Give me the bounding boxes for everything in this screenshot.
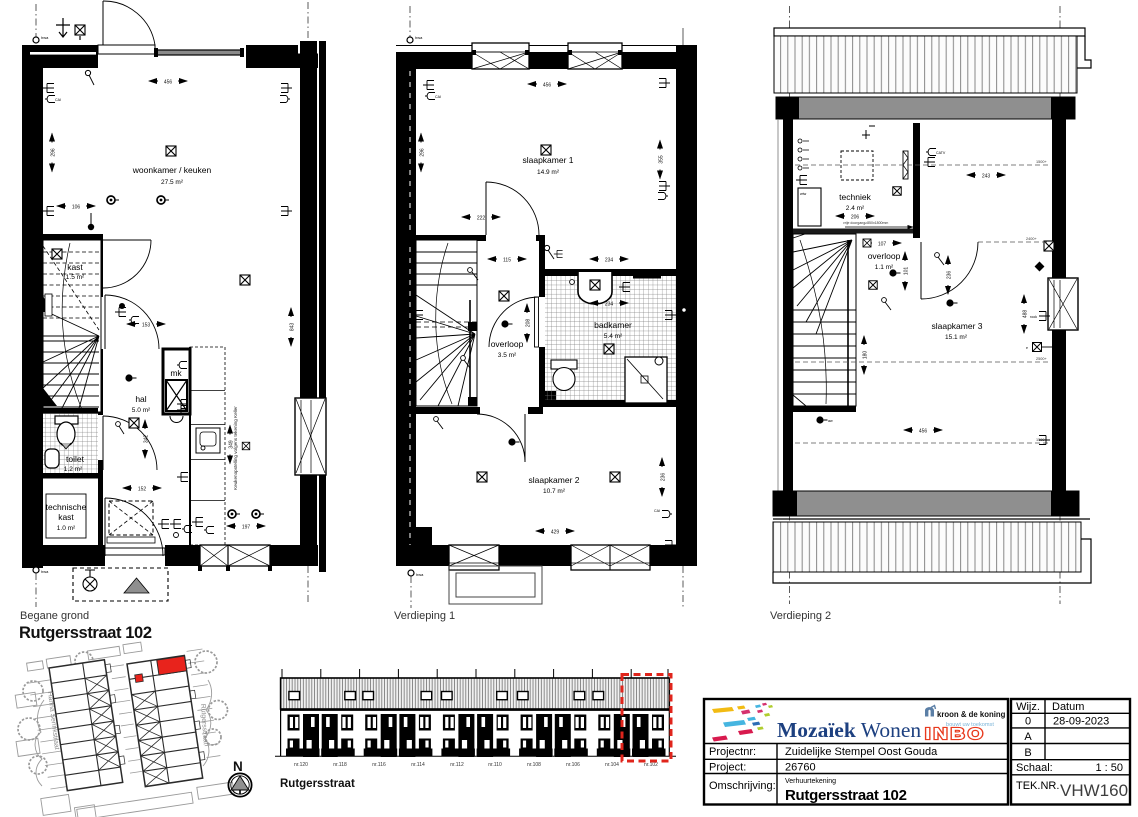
svg-text:115: 115 — [503, 258, 511, 264]
svg-text:mk: mk — [170, 368, 182, 378]
svg-text:N: N — [233, 759, 243, 774]
svg-text:10.7 m²: 10.7 m² — [543, 488, 566, 495]
svg-text:vrije doorgang≥850x1800mm: vrije doorgang≥850x1800mm — [843, 221, 888, 225]
svg-text:5.4 m²: 5.4 m² — [604, 333, 623, 340]
svg-text:Zuidelijke Stempel Oost Gouda: Zuidelijke Stempel Oost Gouda — [785, 746, 938, 758]
svg-text:Rutgersstraat 102: Rutgersstraat 102 — [19, 624, 152, 642]
svg-text:CAI: CAI — [654, 509, 660, 513]
svg-text:429: 429 — [551, 530, 560, 536]
svg-text:nr.102: nr.102 — [644, 762, 658, 768]
svg-text:236: 236 — [947, 271, 953, 280]
svg-text:technische: technische — [46, 502, 87, 512]
svg-text:nr.112: nr.112 — [450, 762, 464, 768]
svg-text:kast: kast — [67, 262, 83, 272]
svg-text:197: 197 — [242, 525, 251, 531]
svg-text:2500+: 2500+ — [1036, 357, 1047, 361]
svg-text:488: 488 — [1023, 310, 1029, 319]
svg-text:1.0 m²: 1.0 m² — [57, 525, 76, 532]
svg-text:0: 0 — [1025, 716, 1031, 728]
svg-text:Schaal:: Schaal: — [1016, 762, 1053, 774]
svg-text:rook: rook — [1030, 315, 1037, 319]
svg-text:woonkamer / keuken: woonkamer / keuken — [132, 165, 212, 175]
svg-text:28-09-2023: 28-09-2023 — [1053, 716, 1109, 728]
svg-text:A: A — [1024, 731, 1032, 743]
svg-text:slaapkamer 1: slaapkamer 1 — [522, 155, 573, 165]
svg-text:Projectnr:: Projectnr: — [709, 746, 756, 758]
svg-text:5.0 m²: 5.0 m² — [132, 407, 151, 414]
svg-text:180: 180 — [863, 351, 869, 360]
svg-text:1 : 50: 1 : 50 — [1095, 762, 1123, 774]
svg-text:106: 106 — [72, 205, 81, 211]
svg-text:e: e — [1026, 346, 1028, 350]
svg-text:1500+: 1500+ — [1036, 160, 1047, 164]
svg-text:1.2 m²: 1.2 m² — [64, 466, 83, 473]
svg-text:Verdieping 1: Verdieping 1 — [394, 610, 455, 622]
svg-text:342: 342 — [144, 435, 150, 444]
svg-text:Wijz.: Wijz. — [1016, 701, 1040, 713]
svg-text:aw: aw — [828, 419, 833, 423]
svg-text:843: 843 — [290, 323, 296, 332]
svg-text:hal: hal — [135, 394, 146, 404]
svg-text:nr.108: nr.108 — [527, 762, 541, 768]
svg-text:hwa: hwa — [415, 35, 423, 40]
svg-text:206: 206 — [851, 215, 860, 221]
svg-text:nr.106: nr.106 — [566, 762, 580, 768]
svg-text:Mozaïek Wonen: Mozaïek Wonen — [777, 718, 921, 742]
svg-text:CAI: CAI — [435, 95, 441, 99]
svg-text:234: 234 — [605, 302, 614, 308]
svg-text:456: 456 — [543, 83, 552, 89]
svg-text:101: 101 — [904, 267, 910, 276]
svg-text:hwa: hwa — [41, 569, 49, 574]
svg-text:152: 152 — [138, 487, 147, 493]
svg-text:overloop: overloop — [868, 251, 901, 261]
svg-text:Datum: Datum — [1052, 701, 1084, 713]
svg-text:14.9 m²: 14.9 m² — [537, 169, 560, 176]
svg-text:CAI: CAI — [55, 98, 61, 102]
svg-text:107: 107 — [878, 242, 887, 248]
svg-text:456: 456 — [919, 429, 928, 435]
svg-text:1.5 m²: 1.5 m² — [66, 274, 85, 281]
svg-text:Project:: Project: — [709, 762, 746, 774]
svg-text:techniek: techniek — [839, 192, 871, 202]
svg-text:VHW160: VHW160 — [1060, 781, 1128, 800]
svg-text:26760: 26760 — [785, 762, 816, 774]
svg-text:Verhuurtekening: Verhuurtekening — [785, 778, 836, 785]
svg-text:hwa: hwa — [41, 35, 49, 40]
svg-text:2.4 m²: 2.4 m² — [846, 205, 865, 212]
svg-text:overloop: overloop — [491, 339, 524, 349]
svg-text:Rutgersstraat 102: Rutgersstraat 102 — [785, 787, 907, 804]
svg-text:296: 296 — [420, 148, 426, 157]
svg-text:CATV: CATV — [936, 151, 946, 155]
svg-text:slaapkamer 2: slaapkamer 2 — [528, 475, 579, 485]
svg-text:nr.110: nr.110 — [488, 762, 502, 768]
svg-text:27.5 m²: 27.5 m² — [161, 179, 184, 186]
svg-text:222: 222 — [477, 216, 486, 222]
svg-text:kast: kast — [58, 512, 74, 522]
svg-text:Begane grond: Begane grond — [20, 610, 89, 622]
svg-text:456: 456 — [164, 80, 173, 86]
svg-text:nr.104: nr.104 — [605, 762, 619, 768]
svg-text:nr.120: nr.120 — [294, 762, 308, 768]
svg-text:nr.114: nr.114 — [411, 762, 425, 768]
svg-text:kroon & de koning: kroon & de koning — [937, 710, 1006, 719]
svg-text:Rutgersstraat: Rutgersstraat — [280, 778, 355, 790]
svg-text:208: 208 — [526, 319, 532, 328]
svg-text:toilet: toilet — [66, 454, 85, 464]
svg-text:wtw: wtw — [800, 192, 807, 196]
svg-text:nr.116: nr.116 — [372, 762, 386, 768]
svg-text:TEK.NR.: TEK.NR. — [1016, 780, 1059, 792]
svg-text:hwa: hwa — [416, 572, 424, 577]
svg-text:nr.118: nr.118 — [333, 762, 347, 768]
svg-text:3.5 m²: 3.5 m² — [498, 352, 517, 359]
svg-text:349: 349 — [229, 440, 235, 449]
svg-text:Omschrijving:: Omschrijving: — [709, 780, 776, 792]
svg-text:355: 355 — [659, 155, 665, 164]
svg-text:236: 236 — [661, 473, 667, 482]
svg-text:B: B — [1024, 747, 1031, 759]
svg-text:badkamer: badkamer — [594, 320, 632, 330]
svg-text:slaapkamer 3: slaapkamer 3 — [931, 321, 982, 331]
svg-text:153: 153 — [142, 323, 151, 329]
svg-text:296: 296 — [51, 148, 57, 157]
svg-text:15.1 m²: 15.1 m² — [945, 334, 968, 341]
svg-text:2400+: 2400+ — [1026, 237, 1037, 241]
svg-text:243: 243 — [982, 174, 991, 180]
svg-text:INBO: INBO — [925, 725, 986, 743]
svg-text:234: 234 — [605, 258, 614, 264]
svg-text:Verdieping 2: Verdieping 2 — [770, 610, 831, 622]
